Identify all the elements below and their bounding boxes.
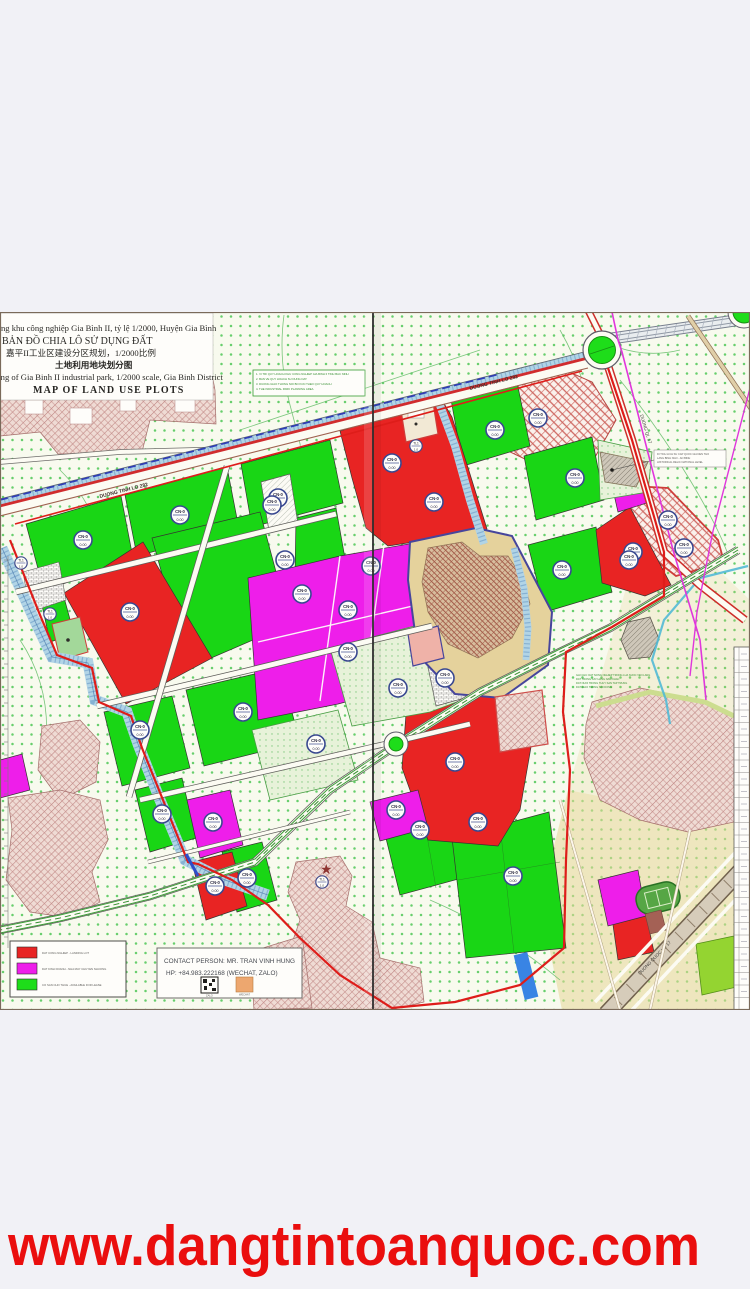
svg-text:www.dangtintoanquoc.com: www.dangtintoanquoc.com <box>7 1214 700 1278</box>
